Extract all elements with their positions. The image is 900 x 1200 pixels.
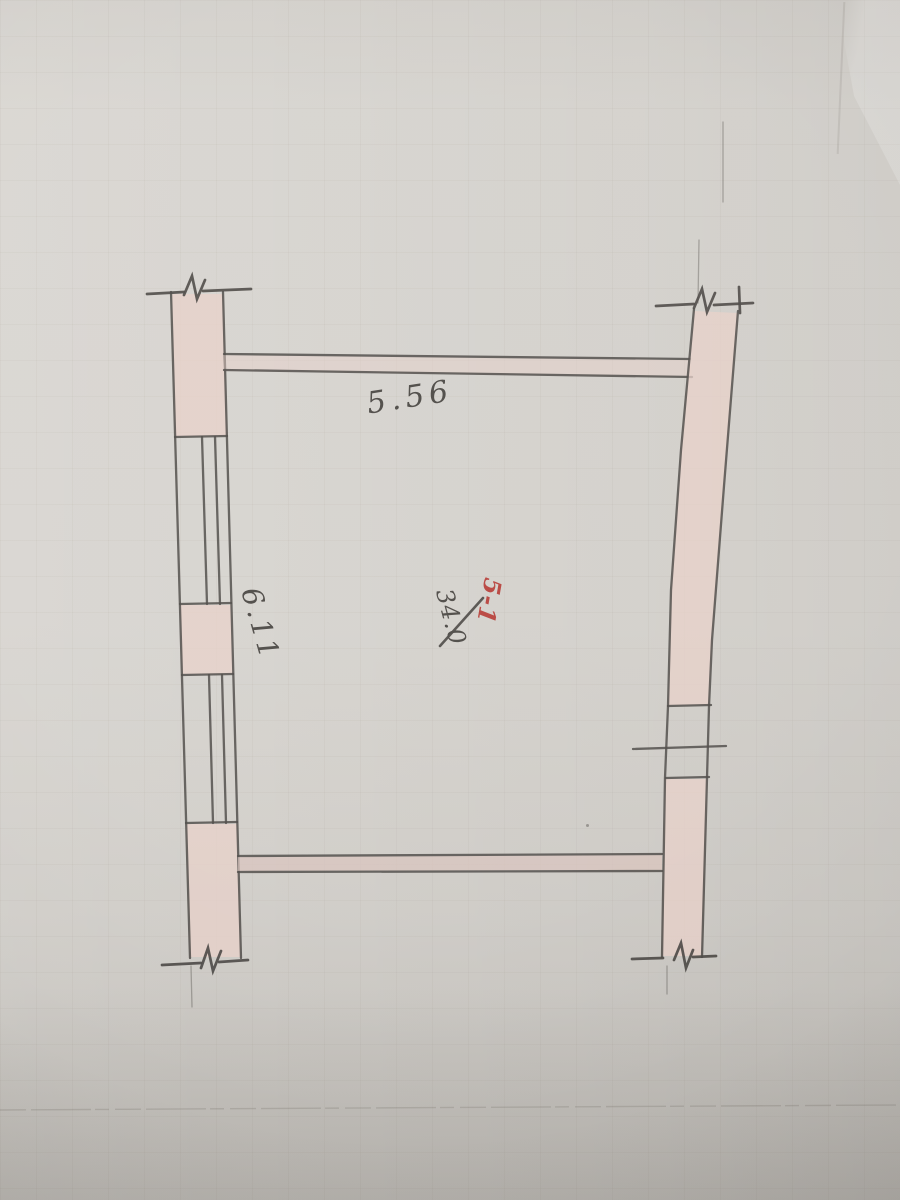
window-symbol-lower xyxy=(209,675,226,823)
right-wall-fill-bottom xyxy=(662,779,707,956)
wall-break-mark-top-right xyxy=(656,287,753,313)
door-opening xyxy=(633,705,726,778)
bottom-wall xyxy=(238,854,662,872)
bottom-wall-fill xyxy=(238,855,662,871)
left-wall-fill-bottom xyxy=(186,824,241,957)
wall-break-mark-top-left xyxy=(147,276,251,299)
window-symbol-upper xyxy=(202,437,220,604)
paper-speck xyxy=(586,824,589,827)
stray-pencil-line xyxy=(0,1105,900,1110)
door-opening-cross-line xyxy=(633,746,726,749)
photographed-floor-plan-sheet: 5.56 6.11 5-1 34.0 xyxy=(0,0,900,1200)
left-wall xyxy=(171,292,241,958)
left-wall-fill-top xyxy=(172,294,227,436)
room-number-label: 5-1 xyxy=(473,576,505,626)
top-wall xyxy=(224,354,692,377)
left-wall-fill-pier xyxy=(180,605,233,674)
construction-lines xyxy=(191,122,723,1007)
